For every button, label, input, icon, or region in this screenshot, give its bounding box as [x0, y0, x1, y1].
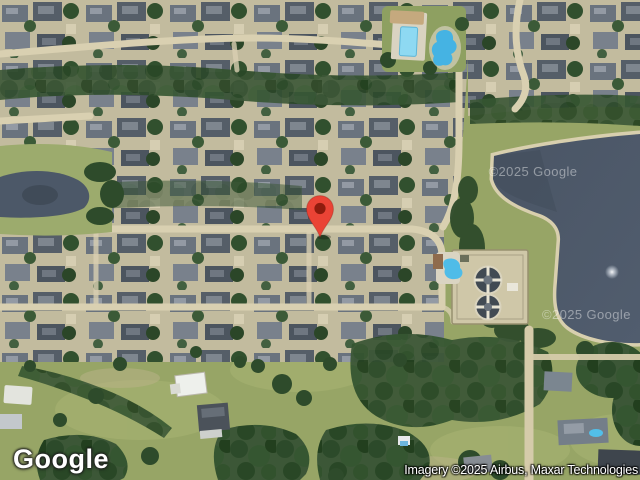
google-logo[interactable]: Google [13, 444, 109, 475]
map-viewport[interactable]: ©2025 Google ©2025 Google Google Imagery… [0, 0, 640, 480]
fountain [605, 265, 619, 279]
lap-pool [399, 27, 417, 57]
map-marker-pin[interactable] [303, 192, 337, 240]
satellite-imagery [0, 0, 640, 480]
community-pool [380, 6, 469, 75]
imagery-attribution: Imagery ©2025 Airbus, Maxar Technologies [404, 463, 638, 477]
